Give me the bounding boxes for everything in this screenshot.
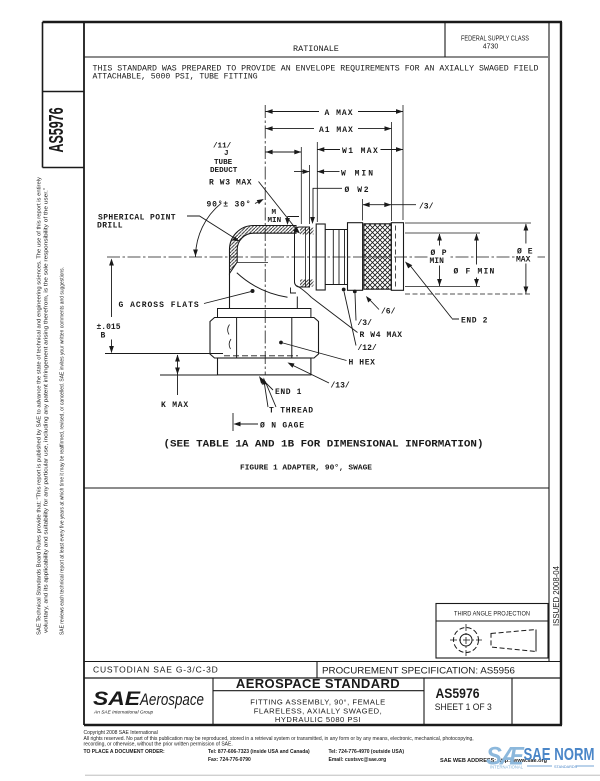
svg-text:PROCUREMENT SPECIFICATION: AS5: PROCUREMENT SPECIFICATION: AS5956 xyxy=(322,666,515,676)
svg-text:K MAX: K MAX xyxy=(161,401,189,410)
svg-text:4730: 4730 xyxy=(483,44,499,51)
svg-text:H HEX: H HEX xyxy=(349,359,376,368)
svg-text:An SAE International Group: An SAE International Group xyxy=(93,710,154,716)
svg-text:ISSUED 2008-04: ISSUED 2008-04 xyxy=(552,565,561,626)
svg-text:ATTACHABLE, 5000 PSI, TUBE FIT: ATTACHABLE, 5000 PSI, TUBE FITTING xyxy=(93,73,258,82)
svg-text:Ø F MIN: Ø F MIN xyxy=(454,268,496,277)
svg-text:SHEET 1 OF 3: SHEET 1 OF 3 xyxy=(435,702,492,713)
svg-text:T THREAD: T THREAD xyxy=(269,407,314,416)
svg-text:/12/: /12/ xyxy=(358,344,377,353)
svg-text:SAE reviews each technical rep: SAE reviews each technical report at lea… xyxy=(60,267,66,635)
svg-text:/3/: /3/ xyxy=(419,203,434,212)
svg-text:TUBE: TUBE xyxy=(214,159,233,167)
svg-text:SAE Technical Standards Board: SAE Technical Standards Board Rules prov… xyxy=(37,177,43,635)
svg-text:Ø N GAGE: Ø N GAGE xyxy=(260,422,305,431)
svg-text:TO PLACE A DOCUMENT ORDER:: TO PLACE A DOCUMENT ORDER: xyxy=(84,749,166,755)
svg-text:/3/: /3/ xyxy=(358,319,373,328)
svg-text:recording, or otherwise, witho: recording, or otherwise, without the pri… xyxy=(84,742,233,748)
svg-text:AEROSPACE STANDARD: AEROSPACE STANDARD xyxy=(236,676,400,691)
svg-text:FIGURE 1 ADAPTER, 90°, SWAGE: FIGURE 1 ADAPTER, 90°, SWAGE xyxy=(240,464,373,473)
svg-text:SAE: SAE xyxy=(93,689,142,710)
svg-text:STANDARDS: STANDARDS xyxy=(554,765,578,769)
svg-text:Email: custsvc@sae.org: Email: custsvc@sae.org xyxy=(329,757,387,763)
svg-text:END 2: END 2 xyxy=(461,317,488,326)
svg-text:AS5976: AS5976 xyxy=(45,108,68,153)
svg-text:END 1: END 1 xyxy=(275,388,302,397)
svg-text:B: B xyxy=(101,332,106,341)
svg-text:/6/: /6/ xyxy=(381,308,396,317)
svg-text:Aerospace: Aerospace xyxy=(139,690,204,709)
svg-text:Tel: 877-606-7323 (inside USA: Tel: 877-606-7323 (inside USA and Canada… xyxy=(208,749,310,755)
svg-text:SAE NORM: SAE NORM xyxy=(524,744,595,764)
svg-text:/11/: /11/ xyxy=(213,143,232,151)
svg-text:MIN: MIN xyxy=(268,217,282,225)
svg-text:W1 MAX: W1 MAX xyxy=(342,147,379,156)
svg-text:J: J xyxy=(224,150,229,158)
svg-text:INTERNATIONAL: INTERNATIONAL xyxy=(490,765,523,770)
svg-text:MIN: MIN xyxy=(430,257,445,266)
svg-text:A1 MAX: A1 MAX xyxy=(319,126,354,135)
svg-text:/13/: /13/ xyxy=(331,382,350,391)
svg-text:G ACROSS FLATS: G ACROSS FLATS xyxy=(119,301,200,310)
svg-text:AS5976: AS5976 xyxy=(436,685,480,701)
svg-text:RATIONALE: RATIONALE xyxy=(293,44,339,54)
svg-text:90°± 30°: 90°± 30° xyxy=(207,201,252,210)
svg-text:Tel: 724-776-4970 (outside USA: Tel: 724-776-4970 (outside USA) xyxy=(329,749,405,755)
svg-text:Ø W2: Ø W2 xyxy=(345,186,371,195)
svg-text:DRILL: DRILL xyxy=(97,221,123,230)
svg-text:DEDUCT: DEDUCT xyxy=(210,167,238,175)
svg-text:MAX: MAX xyxy=(516,256,531,265)
svg-text:FITTING ASSEMBLY, 90°, FEMALE: FITTING ASSEMBLY, 90°, FEMALE xyxy=(250,698,385,707)
svg-text:A MAX: A MAX xyxy=(325,109,354,118)
svg-text:W MIN: W MIN xyxy=(341,169,375,178)
svg-text:CUSTODIAN SAE G-3/C-3D: CUSTODIAN SAE G-3/C-3D xyxy=(93,665,219,675)
svg-text:THIRD ANGLE PROJECTION: THIRD ANGLE PROJECTION xyxy=(454,611,530,618)
svg-text:Fax: 724-776-0790: Fax: 724-776-0790 xyxy=(208,757,251,763)
svg-text:M: M xyxy=(272,209,277,217)
svg-text:(SEE TABLE 1A AND 1B FOR DIMEN: (SEE TABLE 1A AND 1B FOR DIMENSIONAL INF… xyxy=(164,439,484,451)
svg-text:HYDRAULIC 5080 PSI: HYDRAULIC 5080 PSI xyxy=(275,715,361,724)
svg-text:voluntary, and its applicabili: voluntary, and its applicability and sui… xyxy=(44,188,50,633)
svg-text:R W4 MAX: R W4 MAX xyxy=(360,331,403,340)
svg-text:R W3 MAX: R W3 MAX xyxy=(209,178,252,187)
svg-text:FEDERAL SUPPLY CLASS: FEDERAL SUPPLY CLASS xyxy=(461,36,529,43)
